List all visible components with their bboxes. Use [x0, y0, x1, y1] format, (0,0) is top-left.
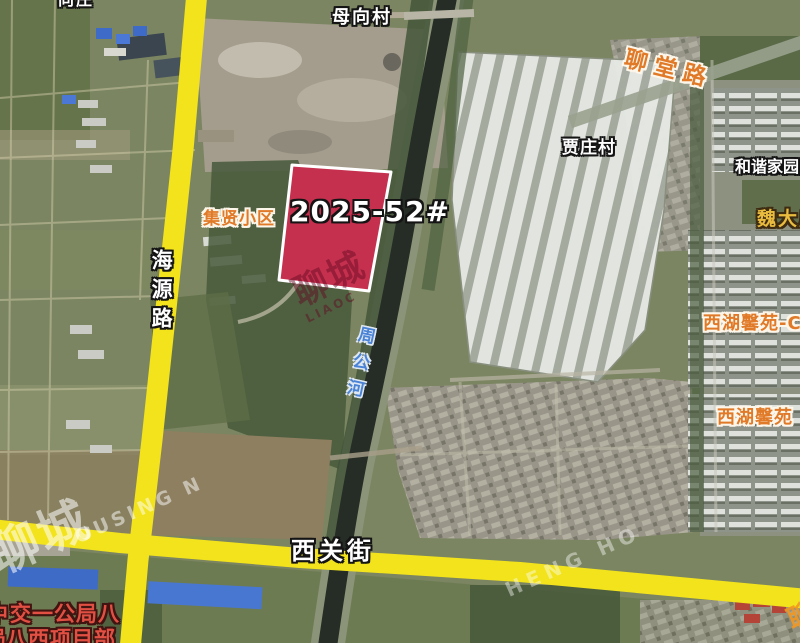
label-xihu-xinyuan-c: 西湖馨苑-C [703, 314, 800, 335]
label-project-line2: 八西项目部 [6, 627, 116, 643]
label-muxiangcun: 母向村 [332, 8, 392, 29]
tilled-field [138, 430, 332, 540]
label-jixian-xiaoqu: 集贤小区 [203, 210, 275, 230]
label-project-line1: 交一公局八 [10, 602, 120, 626]
label-jiazhuangcun: 贾庄村 [562, 139, 616, 159]
map-canvas[interactable]: 聊城 LIAOC 聊城 OUSING N HENG HO 聊城 向庄 母向村 聊… [0, 0, 800, 643]
parcel-id-label: 2025-52# [290, 196, 450, 228]
label-top-left-village: 向庄 [58, 0, 94, 9]
label-weidamiao: 魏大庙 [757, 209, 800, 231]
bridge-north [404, 13, 474, 16]
south-village [385, 378, 694, 540]
label-haiyuan-road: 海源路 [149, 249, 173, 336]
label-xihu-xinyuan: 西湖馨苑 [717, 408, 793, 429]
label-project-line1-prefix: 中 [0, 602, 8, 626]
satellite-imagery [0, 0, 800, 643]
xihu-c-apartments [688, 230, 800, 388]
label-hexie-jiayuan: 和谐家园 [735, 158, 799, 176]
label-xiguan-street: 西关街 [291, 538, 375, 566]
